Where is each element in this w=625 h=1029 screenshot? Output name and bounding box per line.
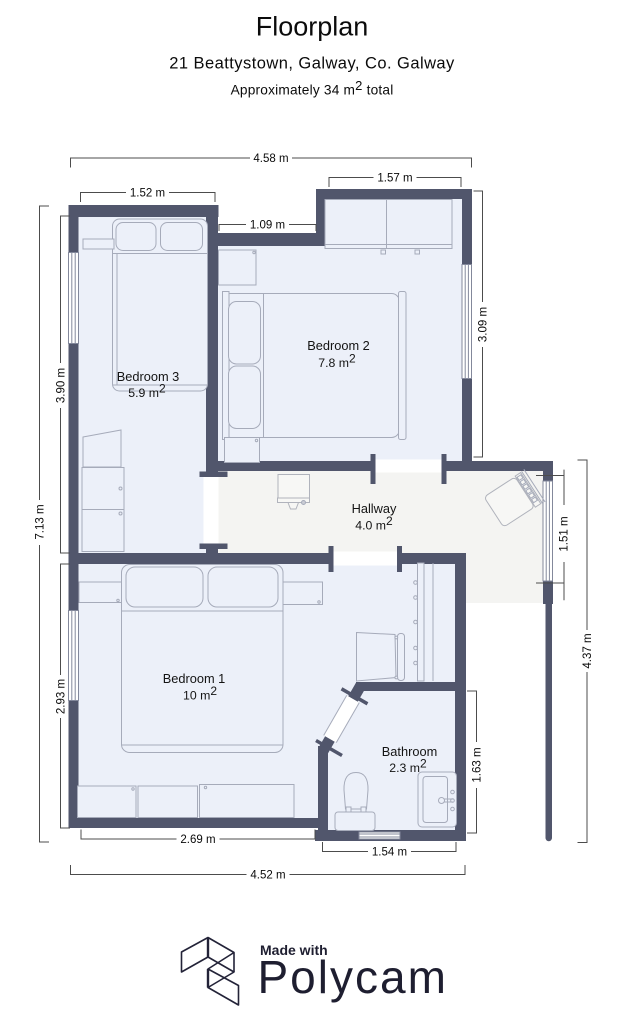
- svg-text:3.90 m: 3.90 m: [56, 368, 68, 403]
- svg-text:1.57 m: 1.57 m: [377, 173, 412, 185]
- svg-text:1.09 m: 1.09 m: [250, 220, 285, 232]
- svg-text:1.63 m: 1.63 m: [472, 747, 484, 782]
- svg-text:4.58 m: 4.58 m: [253, 153, 288, 165]
- svg-text:2.93 m: 2.93 m: [56, 679, 68, 714]
- svg-text:21 Beattystown, Galway, Co. Ga: 21 Beattystown, Galway, Co. Galway: [169, 55, 455, 73]
- svg-text:Polycam: Polycam: [258, 951, 448, 1003]
- svg-text:Bedroom 2: Bedroom 2: [307, 338, 370, 353]
- svg-text:Floorplan: Floorplan: [256, 12, 369, 42]
- svg-text:1.51 m: 1.51 m: [559, 516, 571, 551]
- svg-text:4.37 m: 4.37 m: [582, 633, 594, 668]
- svg-text:Bathroom: Bathroom: [382, 744, 437, 759]
- svg-text:1.52 m: 1.52 m: [130, 188, 165, 200]
- svg-text:7.13 m: 7.13 m: [35, 504, 47, 539]
- svg-text:3.09 m: 3.09 m: [478, 307, 490, 342]
- svg-text:2.69 m: 2.69 m: [180, 834, 215, 846]
- svg-text:4.52 m: 4.52 m: [250, 870, 285, 882]
- svg-text:Approximately 34 m2 total: Approximately 34 m2 total: [231, 78, 394, 98]
- svg-text:Bedroom 3: Bedroom 3: [117, 369, 180, 384]
- svg-text:1.54 m: 1.54 m: [372, 847, 407, 859]
